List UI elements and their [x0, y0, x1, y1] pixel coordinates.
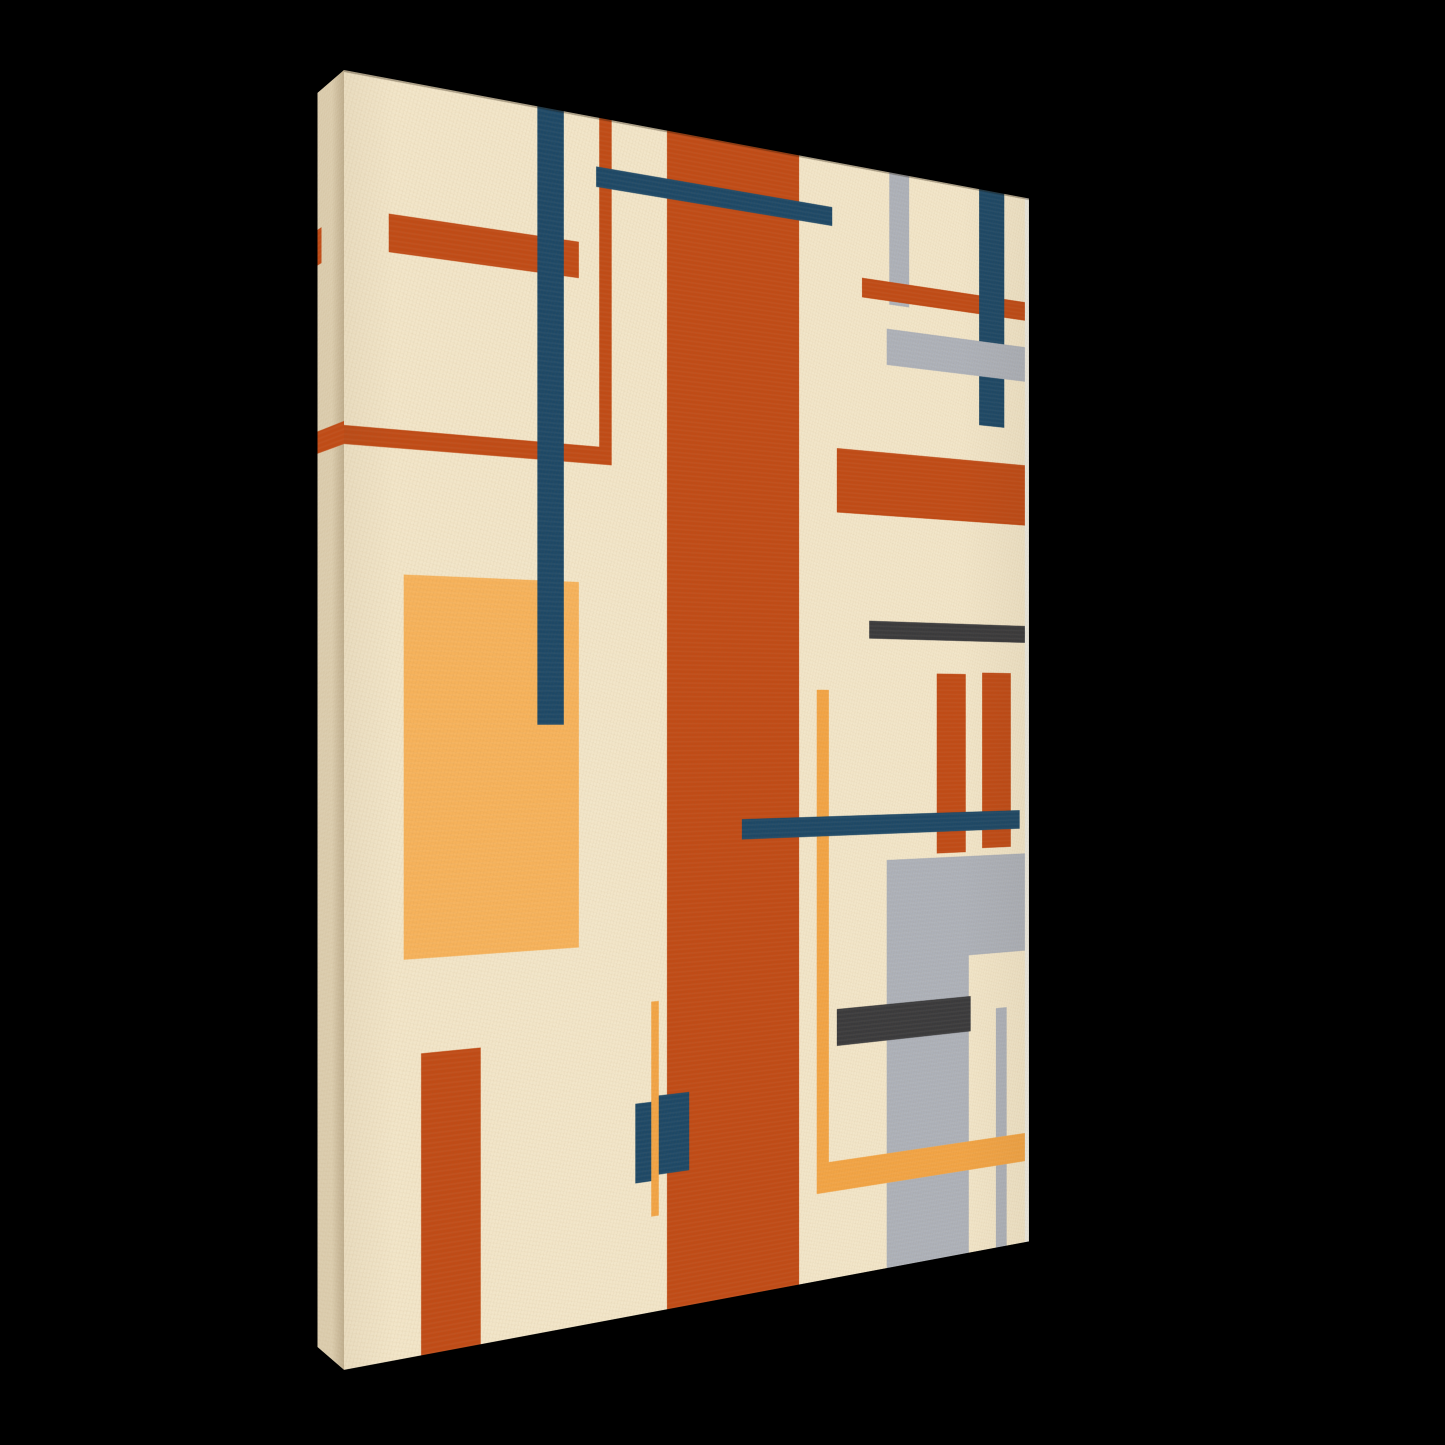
gray-line-vertical-lower [996, 1007, 1007, 1248]
artwork-front [344, 70, 1029, 1370]
rust-bar-right [837, 448, 1029, 526]
amber-line-vertical-right [817, 690, 829, 1194]
gray-bar-top-right [887, 329, 1029, 382]
navy-bar-vertical-top-right [979, 189, 1004, 427]
side-wrap-rust-strip-middle [317, 421, 344, 454]
canvas-edge-highlight [1025, 198, 1029, 1242]
rust-rectangle-bottom-left [421, 1047, 481, 1355]
canvas-print-scene [344, 70, 1286, 1370]
navy-line-vertical-left [537, 106, 564, 725]
charcoal-bar-right-upper [869, 621, 1029, 643]
side-wrap-rust-strip-upper [318, 227, 322, 265]
navy-block-right [657, 1092, 689, 1175]
amber-line-vertical-center [651, 1001, 659, 1217]
rust-line-horizontal-left [344, 425, 611, 465]
black-background [0, 0, 1445, 1445]
gray-block-column [887, 856, 969, 1268]
canvas-side-face [317, 70, 344, 1370]
gray-block-right [969, 854, 1029, 955]
canvas-side-texture [317, 70, 344, 1370]
canvas-print-mockup [344, 70, 1029, 1370]
